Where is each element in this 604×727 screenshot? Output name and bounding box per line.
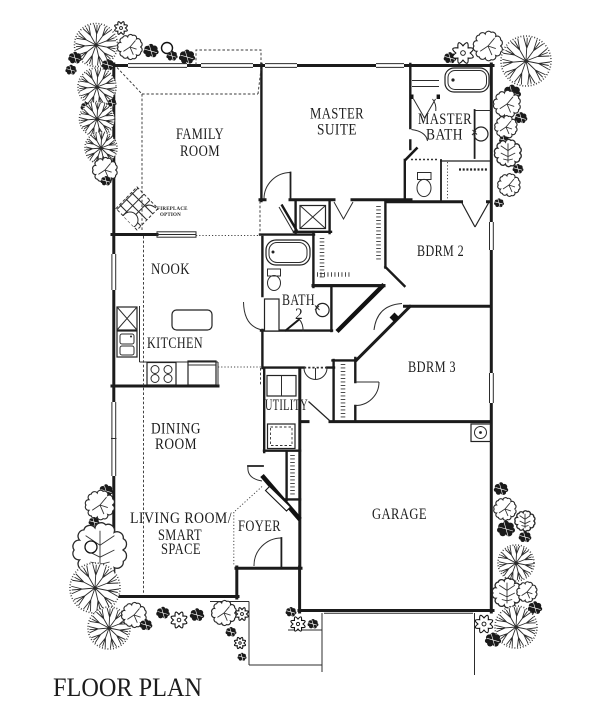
svg-text:FIREPLACE: FIREPLACE xyxy=(157,207,188,212)
svg-text:FLOOR PLAN: FLOOR PLAN xyxy=(53,673,202,702)
svg-text:MASTER: MASTER xyxy=(310,106,364,123)
svg-text:BATH: BATH xyxy=(426,127,463,144)
svg-text:FAMILY: FAMILY xyxy=(176,126,224,143)
svg-text:SPACE: SPACE xyxy=(161,541,201,558)
svg-text:2: 2 xyxy=(295,306,303,323)
svg-text:SUITE: SUITE xyxy=(317,122,357,139)
svg-text:NOOK: NOOK xyxy=(151,261,190,278)
svg-text:ROOM: ROOM xyxy=(155,436,197,453)
svg-text:ROOM: ROOM xyxy=(180,143,220,160)
svg-text:OPTION: OPTION xyxy=(160,213,181,218)
svg-text:FOYER: FOYER xyxy=(238,518,281,535)
svg-text:KITCHEN: KITCHEN xyxy=(147,335,203,352)
svg-text:DINING: DINING xyxy=(151,421,201,438)
svg-text:GARAGE: GARAGE xyxy=(372,506,427,523)
svg-text:BDRM 2: BDRM 2 xyxy=(417,243,464,260)
svg-text:BDRM 3: BDRM 3 xyxy=(408,359,456,376)
svg-text:MASTER: MASTER xyxy=(418,111,472,128)
svg-text:LIVING ROOM/: LIVING ROOM/ xyxy=(130,510,232,527)
svg-text:UTILITY: UTILITY xyxy=(265,397,308,414)
